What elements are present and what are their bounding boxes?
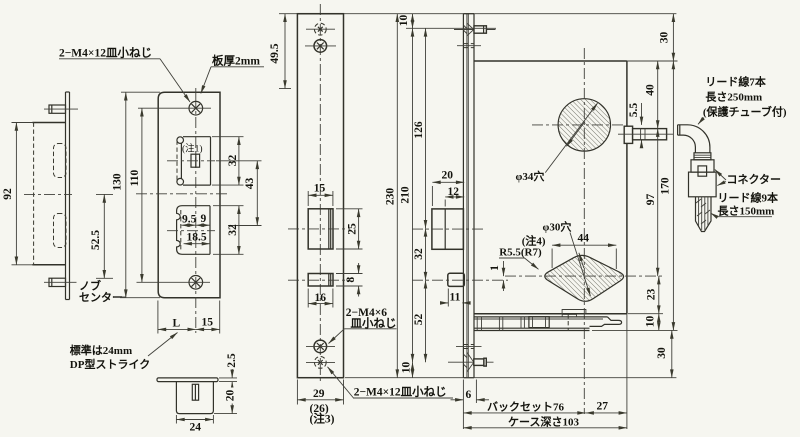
svg-text:11: 11 — [450, 292, 461, 304]
svg-text:52.5: 52.5 — [90, 230, 102, 250]
svg-text:DP型ストライク: DP型ストライク — [70, 357, 150, 371]
svg-text:リード線7本: リード線7本 — [705, 75, 766, 89]
svg-text:(保護チューブ付): (保護チューブ付) — [703, 105, 787, 119]
svg-text:標準は24mm: 標準は24mm — [70, 343, 132, 357]
svg-text:(注3): (注3) — [310, 412, 335, 426]
svg-text:(注1): (注1) — [182, 143, 203, 155]
svg-text:(注4): (注4) — [522, 234, 546, 248]
svg-text:52: 52 — [413, 314, 425, 326]
svg-text:10: 10 — [398, 15, 410, 27]
svg-text:97: 97 — [645, 194, 657, 206]
svg-text:5.5: 5.5 — [628, 103, 640, 118]
svg-text:9: 9 — [201, 213, 207, 225]
svg-text:92: 92 — [2, 188, 14, 200]
svg-text:15: 15 — [202, 317, 214, 329]
svg-text:126: 126 — [413, 121, 425, 139]
svg-text:44: 44 — [578, 233, 590, 245]
svg-text:長さ150mm: 長さ150mm — [718, 205, 775, 218]
svg-text:コネクター: コネクター — [727, 173, 782, 186]
svg-text:170: 170 — [660, 177, 672, 195]
svg-text:130: 130 — [112, 173, 124, 191]
svg-text:皿小ねじ: 皿小ねじ — [351, 316, 397, 330]
svg-text:16: 16 — [315, 292, 327, 304]
svg-text:10: 10 — [645, 316, 657, 328]
svg-text:18.5: 18.5 — [187, 232, 207, 244]
svg-text:φ30穴: φ30穴 — [543, 220, 572, 234]
svg-text:10: 10 — [401, 362, 413, 374]
svg-text:30: 30 — [656, 347, 668, 359]
svg-text:6: 6 — [466, 389, 472, 401]
svg-text:30: 30 — [659, 32, 671, 44]
svg-text:43: 43 — [244, 178, 256, 190]
svg-text:230: 230 — [385, 188, 397, 206]
svg-text:9.5: 9.5 — [182, 214, 197, 226]
svg-text:23: 23 — [645, 289, 657, 301]
svg-text:24: 24 — [190, 422, 202, 434]
svg-text:2−M4×12皿小ねじ: 2−M4×12皿小ねじ — [59, 46, 152, 60]
svg-text:12: 12 — [448, 186, 460, 198]
svg-text:2.5: 2.5 — [226, 353, 238, 368]
svg-text:板厚2mm: 板厚2mm — [212, 54, 260, 68]
svg-text:32: 32 — [413, 248, 425, 260]
svg-text:20: 20 — [224, 390, 236, 402]
svg-text:49.5: 49.5 — [269, 43, 281, 63]
svg-text:2−M4×12皿小ねじ: 2−M4×12皿小ねじ — [354, 385, 447, 399]
svg-text:L: L — [173, 318, 181, 330]
svg-text:R5.5(R7): R5.5(R7) — [499, 247, 542, 259]
svg-text:20: 20 — [442, 170, 454, 182]
svg-text:27: 27 — [597, 401, 609, 413]
svg-text:ケース深さ103: ケース深さ103 — [508, 415, 579, 429]
svg-text:バックセット76: バックセット76 — [487, 401, 564, 414]
svg-text:8: 8 — [345, 277, 357, 283]
svg-text:1: 1 — [489, 265, 501, 271]
svg-text:25: 25 — [346, 223, 358, 235]
svg-text:ノブ: ノブ — [79, 278, 101, 292]
svg-text:40: 40 — [644, 84, 656, 96]
svg-text:210: 210 — [399, 186, 411, 204]
svg-text:110: 110 — [129, 169, 141, 186]
svg-text:φ34穴: φ34穴 — [516, 169, 545, 183]
svg-text:32: 32 — [227, 224, 239, 236]
svg-text:リード線9本: リード線9本 — [718, 191, 779, 205]
svg-text:長さ250mm: 長さ250mm — [705, 91, 762, 104]
svg-text:15: 15 — [314, 183, 326, 195]
svg-text:29: 29 — [313, 388, 325, 400]
